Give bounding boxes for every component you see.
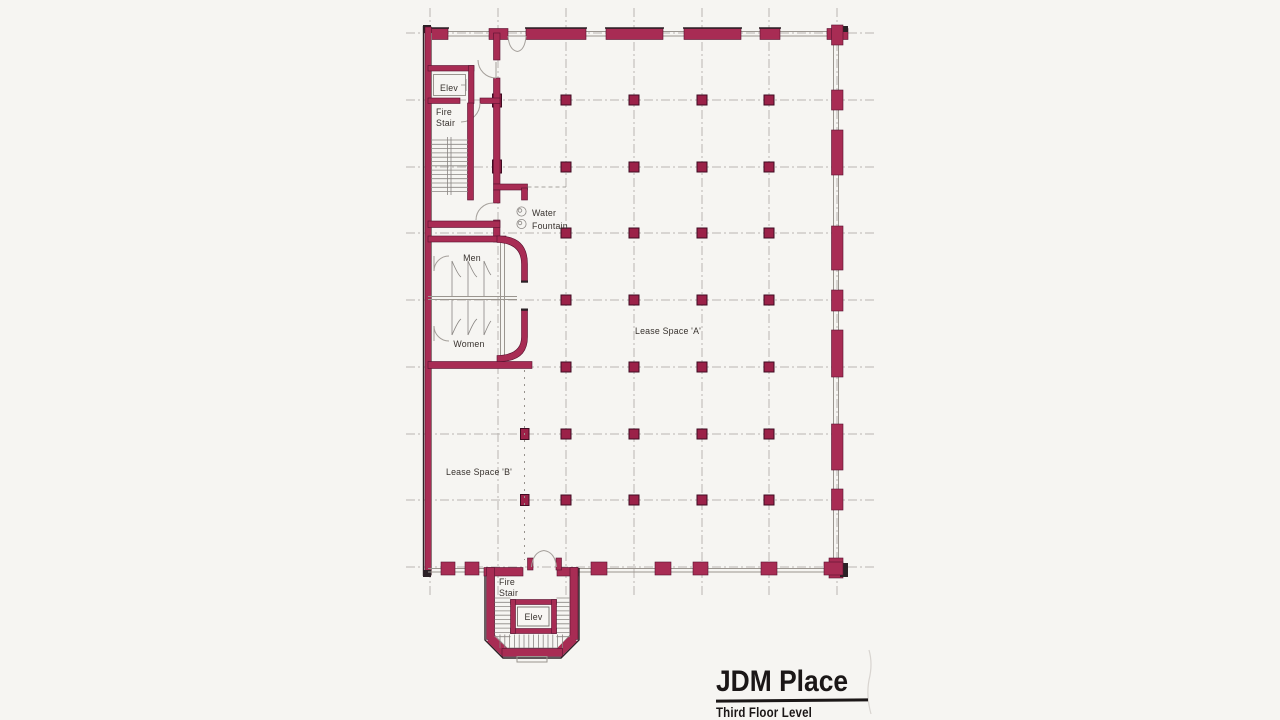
label-lease-space-a: Lease Space 'A' (635, 326, 701, 336)
drawing-subtitle: Third Floor Level (716, 705, 845, 720)
door-swing (508, 36, 526, 52)
scanned-floor-plan-page: Elev Fire Stair Water Fountain (0, 0, 1280, 720)
door-swing (478, 60, 496, 78)
label-women: Women (453, 339, 484, 349)
label-men: Men (463, 253, 481, 263)
mens-restroom: Men (434, 253, 491, 296)
label-fire-stair-bottom-2: Stair (499, 588, 518, 598)
label-water-2: Fountain (532, 221, 568, 231)
title-block: JDM Place Third Floor Level (716, 667, 868, 720)
door-swing (476, 203, 493, 220)
lease-space-b: Lease Space 'B' (446, 370, 525, 560)
elevator-room-top: Elev (428, 66, 500, 104)
water-fountain: Water Fountain (517, 207, 568, 231)
fire-stair-room-top: Fire Stair (428, 103, 500, 228)
lease-space-a: Lease Space 'A' (635, 326, 701, 336)
elevator-room-bottom: Elev (511, 600, 557, 634)
stair-treads (431, 137, 468, 195)
corridor-curve-lower (497, 311, 528, 362)
floor-plan-svg: Elev Fire Stair Water Fountain (0, 0, 1280, 720)
door-swing (434, 326, 449, 341)
right-wall-windows (829, 25, 848, 578)
drawing-title: JDM Place (716, 667, 850, 697)
door-swing (532, 551, 557, 568)
label-elevator-bottom: Elev (525, 612, 543, 622)
stair-tower: Elev Fire Stair (484, 551, 579, 663)
left-wall (423, 26, 432, 577)
label-elevator-top: Elev (440, 83, 458, 93)
column-grid (406, 8, 876, 598)
label-water-1: Water (532, 208, 556, 218)
label-lease-space-b: Lease Space 'B' (446, 467, 512, 477)
label-fire-stair-bottom-1: Fire (499, 577, 515, 587)
water-fountain-icon (517, 207, 526, 229)
label-fire-stair-top-2: Stair (436, 118, 455, 128)
label-fire-stair-top-1: Fire (436, 107, 452, 117)
door-swing (434, 256, 449, 271)
title-underline (716, 698, 868, 702)
paper-crease (868, 650, 871, 714)
restrooms: Men Women (428, 236, 532, 369)
womens-restroom: Women (434, 300, 491, 349)
corridor-curve-upper (497, 236, 528, 282)
top-wall-windows (423, 25, 848, 40)
